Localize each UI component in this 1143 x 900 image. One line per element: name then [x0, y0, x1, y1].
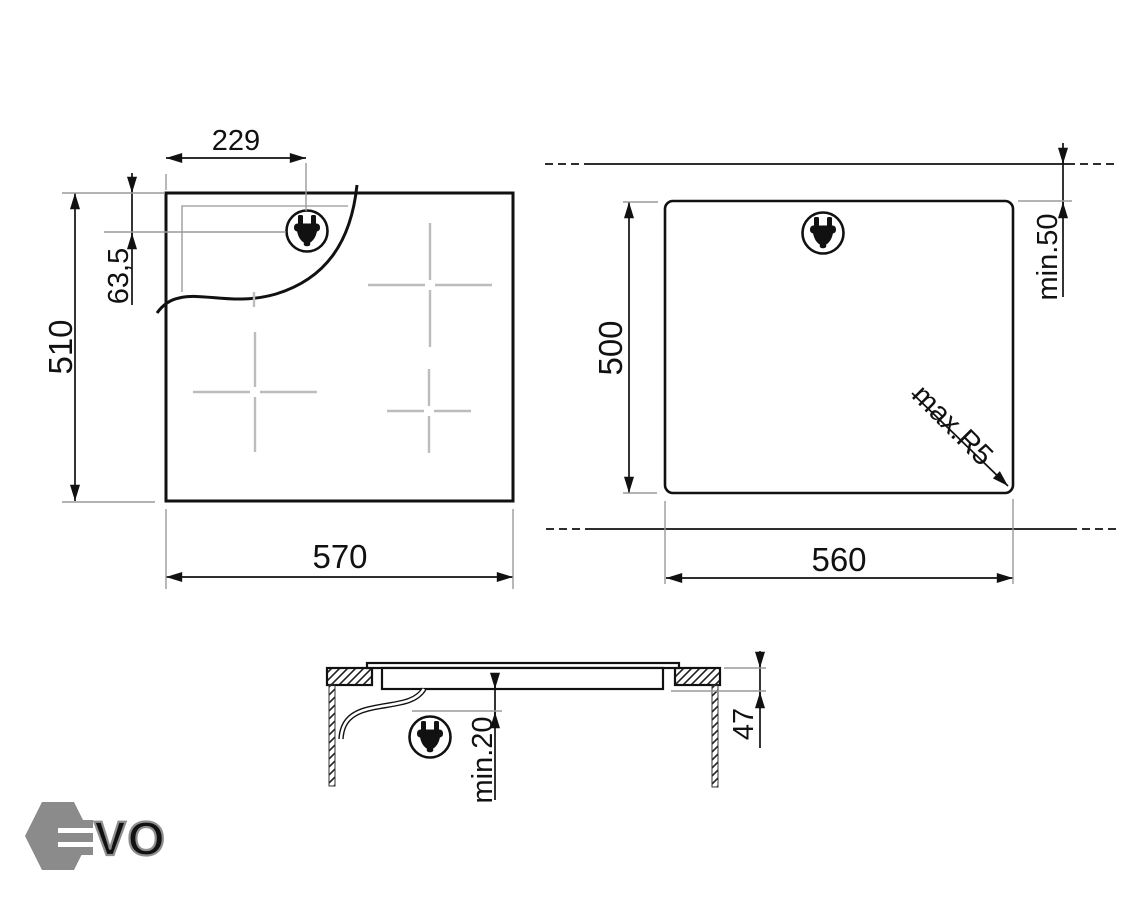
logo-e-bar [62, 833, 93, 842]
dim-label-hob-width: 570 [312, 538, 367, 575]
hob-body-section [382, 668, 663, 689]
logo-e-bar [62, 820, 93, 828]
logo-e-bar [62, 847, 93, 855]
dim-label-cutout-depth: 500 [592, 320, 629, 375]
dim-label-plug-y: 63,5 [103, 248, 135, 304]
worktop-right-section [675, 668, 720, 685]
cabinet-side-left [329, 685, 335, 786]
power-plug-icon [803, 213, 844, 254]
logo-e-gap [58, 842, 96, 847]
dim-label-bottom-clearance: min.20 [467, 716, 499, 803]
installation-diagram: 229 63,5 510 570 [0, 0, 1143, 900]
worktop-left-section [327, 668, 372, 685]
logo-e-gap [58, 828, 96, 833]
dim-label-recess-depth: 47 [728, 708, 760, 740]
dim-label-hob-depth: 510 [42, 319, 79, 374]
power-plug-icon [410, 717, 451, 758]
logo-outline-letters: VO [94, 813, 166, 866]
evo-logo: VO [25, 802, 166, 870]
installation-drawing-sheet: 229 63,5 510 570 [0, 0, 1143, 900]
cabinet-side-right [712, 685, 718, 787]
hob-outline [166, 193, 513, 501]
dim-label-rear-clearance: min.50 [1032, 213, 1064, 300]
dim-label-plug-x: 229 [212, 125, 260, 157]
dim-label-cutout-width: 560 [811, 541, 866, 578]
power-plug-icon [287, 211, 328, 252]
